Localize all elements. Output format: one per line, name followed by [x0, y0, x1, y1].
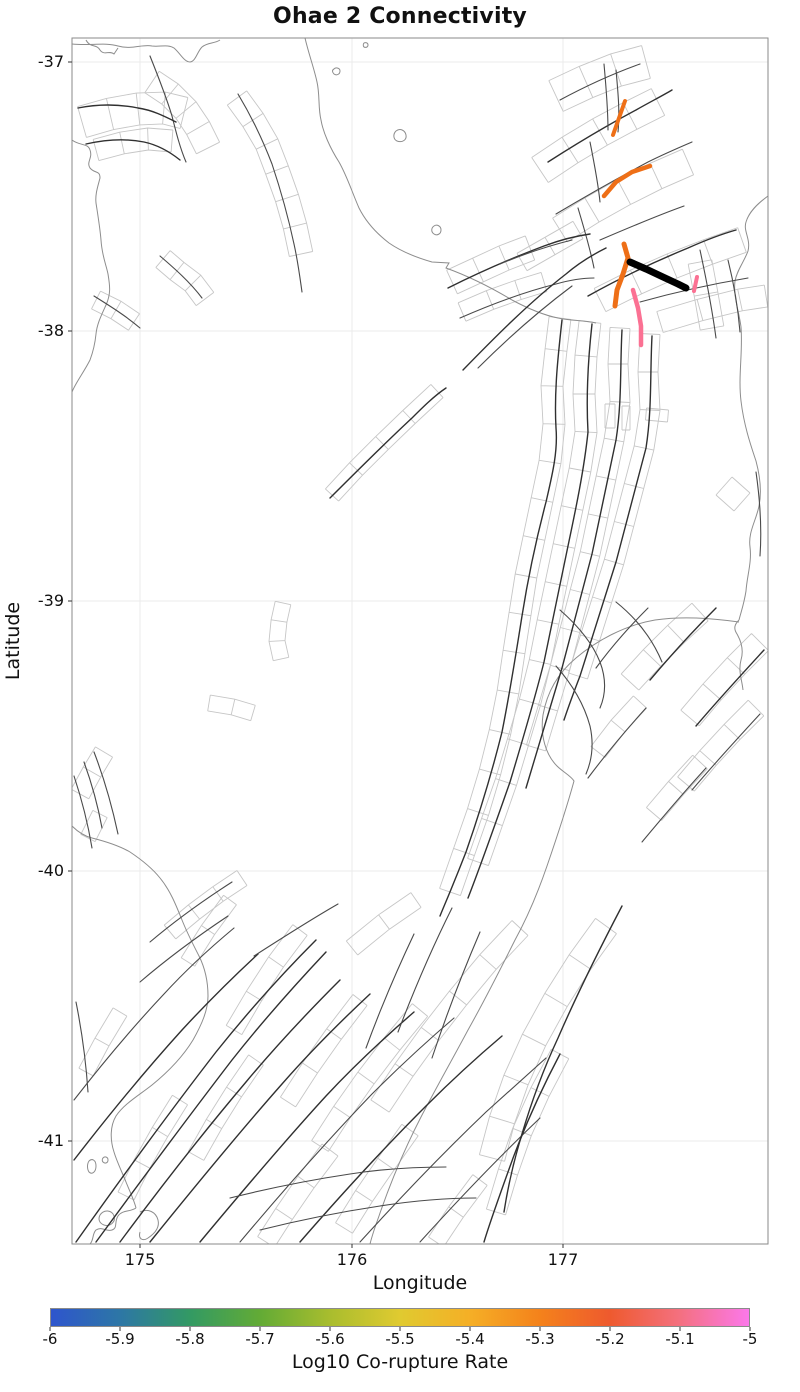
colorbar-tick-label: -5.1: [650, 1332, 710, 1347]
co-rupture-orange-middle: [604, 166, 650, 196]
figure: Ohae 2 Connectivity -37-38-39-40-41 1751…: [0, 0, 800, 1392]
colorbar-tick-label: -5.9: [90, 1332, 150, 1347]
colorbar-tick-label: -5: [720, 1332, 780, 1347]
x-tick-label: 175: [110, 1252, 170, 1268]
co-rupture-pink-east: [694, 277, 697, 291]
x-axis-label: Longitude: [72, 1272, 768, 1294]
colorbar-tick-label: -5.5: [370, 1332, 430, 1347]
colorbar: [50, 1308, 750, 1327]
co-rupture-pink-south: [633, 290, 641, 345]
map-canvas: [0, 0, 800, 1392]
x-tick-label: 177: [533, 1252, 593, 1268]
y-tick-label: -41: [6, 1133, 64, 1149]
y-axis-label: Latitude: [2, 601, 24, 681]
colorbar-tick-label: -5.4: [440, 1332, 500, 1347]
colorbar-label: Log10 Co-rupture Rate: [50, 1351, 750, 1373]
y-tick-label: -37: [6, 54, 64, 70]
colorbar-tick-label: -5.3: [510, 1332, 570, 1347]
co-rupture-orange-south: [615, 244, 628, 306]
y-tick-label: -38: [6, 323, 64, 339]
x-tick-label: 176: [322, 1252, 382, 1268]
colorbar-tick-label: -5.8: [160, 1332, 220, 1347]
colorbar-tick-label: -5.2: [580, 1332, 640, 1347]
colorbar-tick-label: -5.7: [230, 1332, 290, 1347]
ohae-2-target-fault: [630, 262, 686, 288]
colorbar-tick-label: -6: [20, 1332, 80, 1347]
colorbar-tick-label: -5.6: [300, 1332, 360, 1347]
y-tick-label: -40: [6, 863, 64, 879]
